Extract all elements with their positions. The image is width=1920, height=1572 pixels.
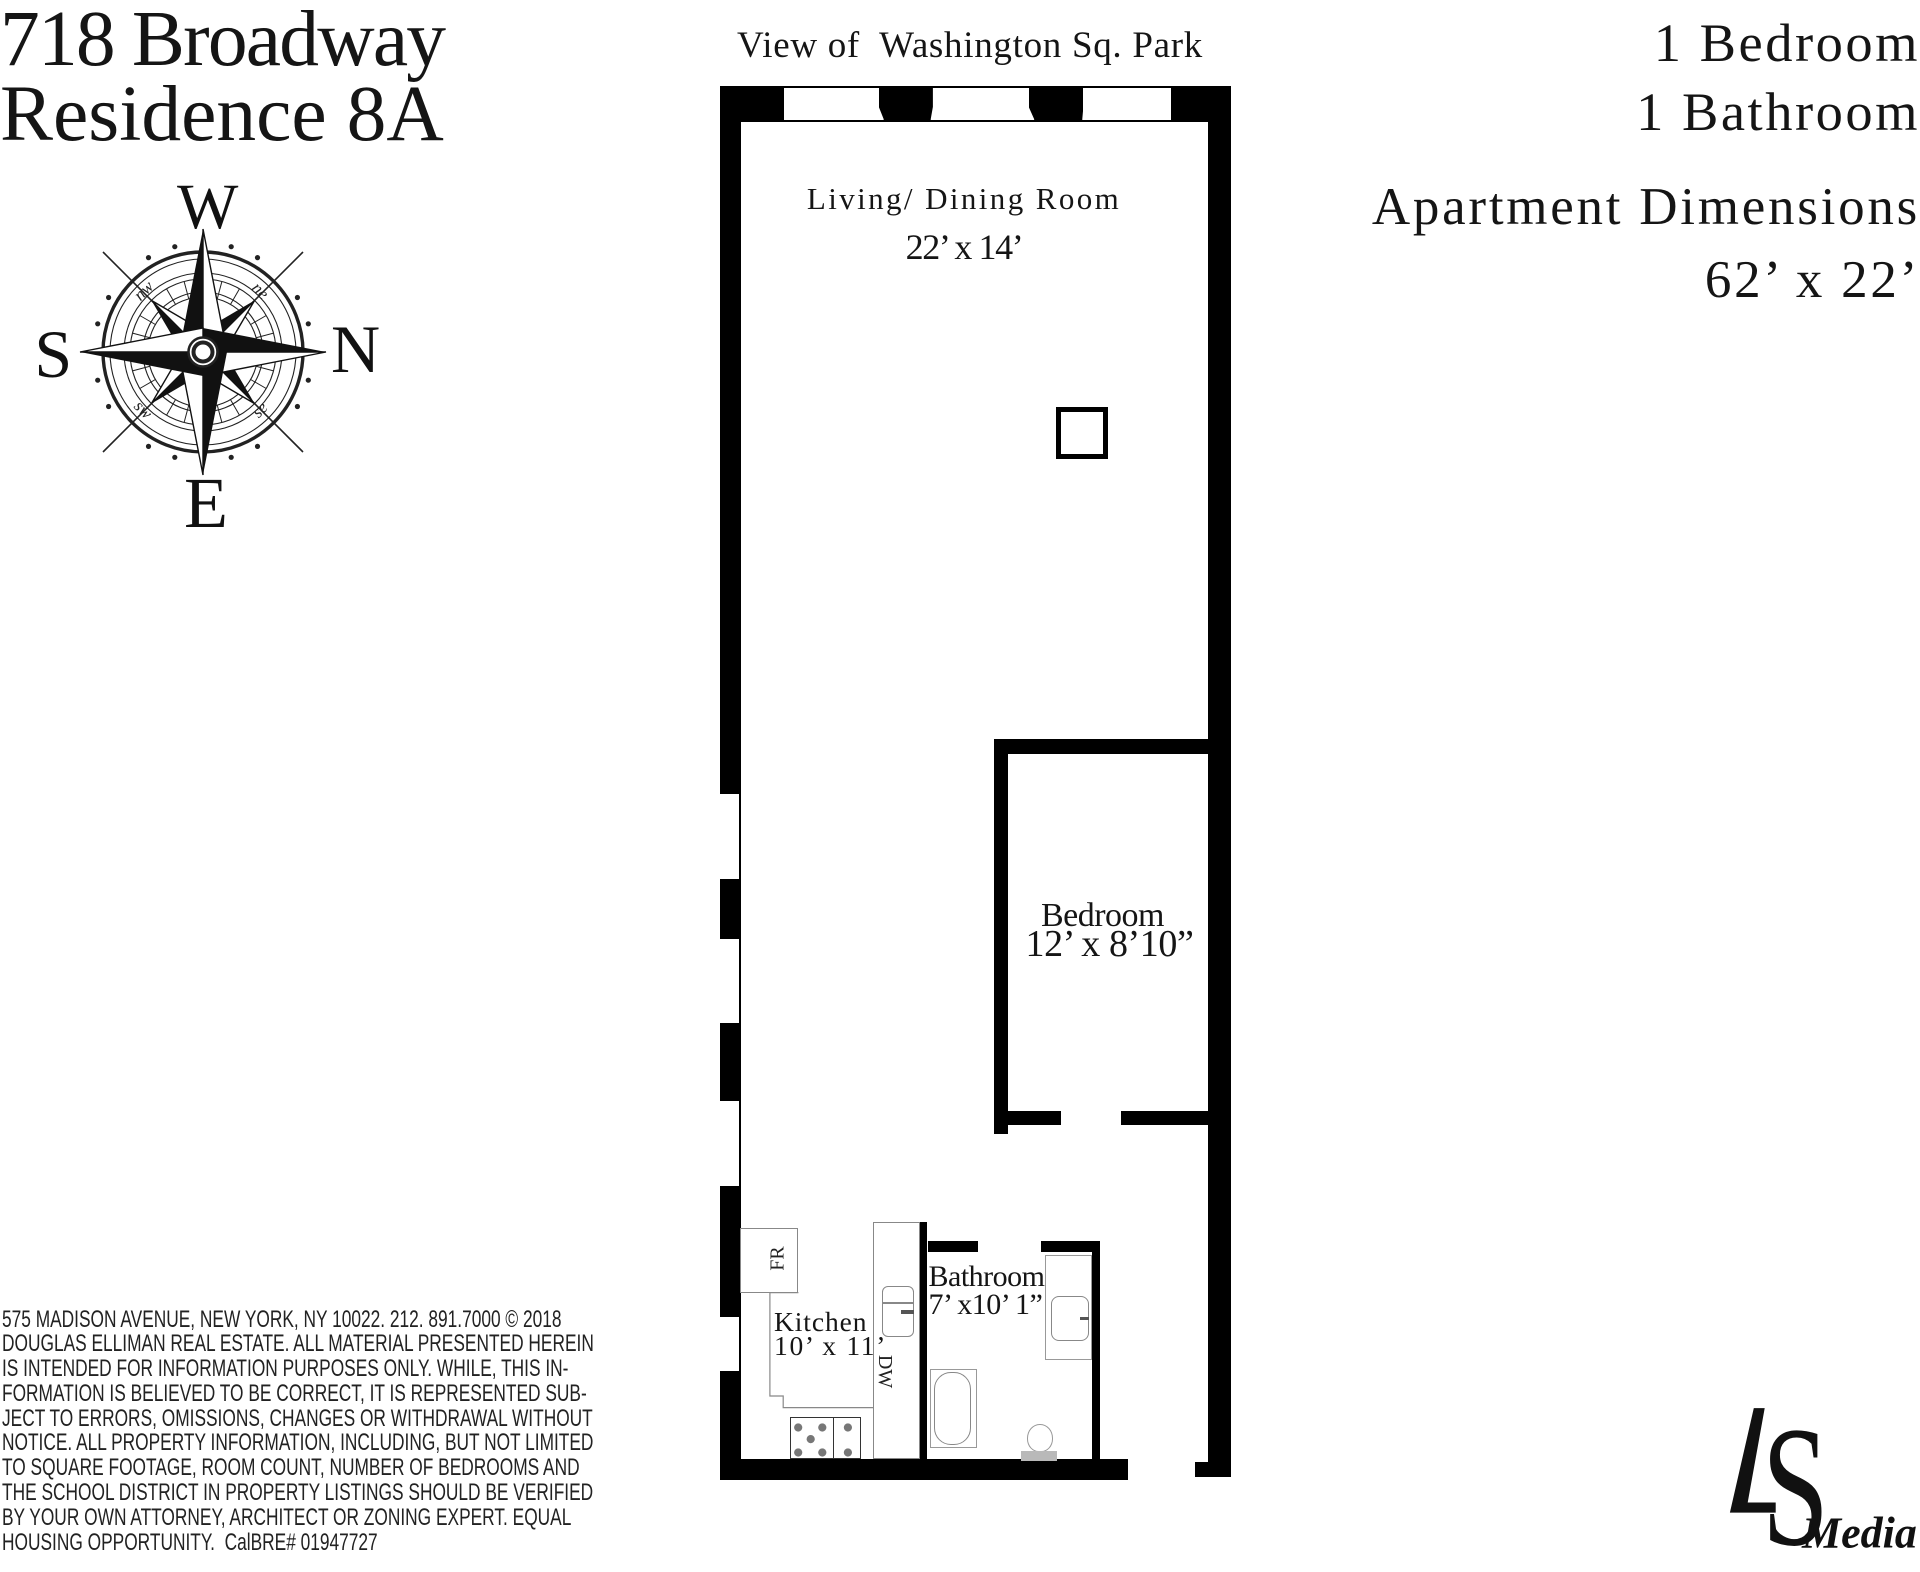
svg-text:Media: Media — [1801, 1508, 1917, 1557]
